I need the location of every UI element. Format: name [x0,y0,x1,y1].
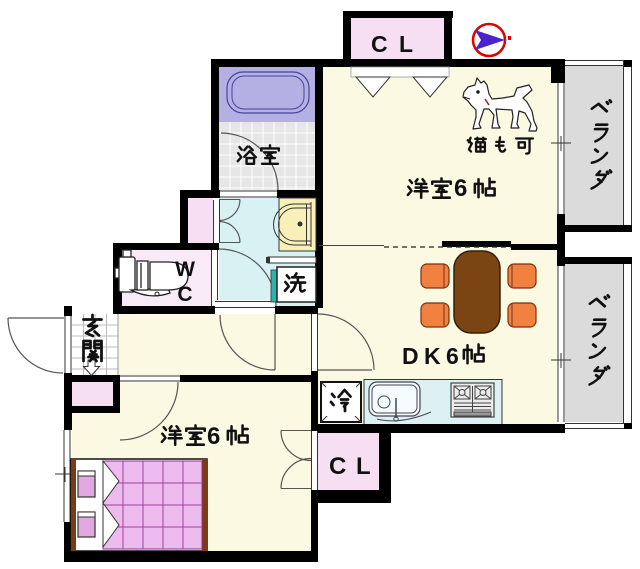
svg-text:6: 6 [207,423,220,450]
svg-text:C: C [177,283,192,306]
svg-text:K: K [424,343,441,369]
svg-text:D: D [402,343,419,369]
svg-text:W: W [175,258,195,281]
svg-text:6: 6 [454,175,467,202]
svg-text:L: L [399,31,413,57]
svg-text:C: C [371,31,388,57]
svg-text:C: C [329,453,346,480]
svg-text:6: 6 [446,343,459,369]
svg-text:L: L [356,453,371,480]
